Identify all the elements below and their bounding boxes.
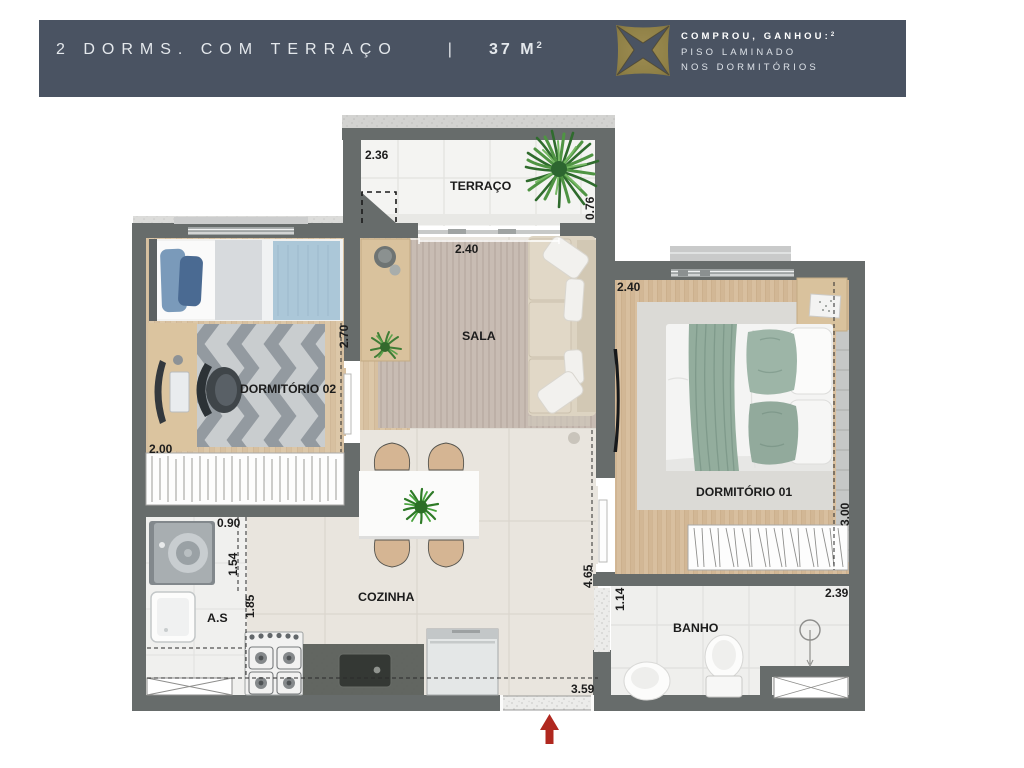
svg-text:2.39: 2.39 [825, 586, 849, 600]
svg-text:0.76: 0.76 [583, 196, 597, 220]
svg-text:1.85: 1.85 [243, 594, 257, 618]
svg-text:DORMITÓRIO 02: DORMITÓRIO 02 [240, 381, 336, 396]
svg-text:2.40: 2.40 [617, 280, 641, 294]
svg-text:BANHO: BANHO [673, 621, 719, 635]
svg-text:SALA: SALA [462, 329, 496, 343]
svg-text:TERRAÇO: TERRAÇO [450, 179, 512, 193]
svg-text:DORMITÓRIO 01: DORMITÓRIO 01 [696, 484, 792, 499]
svg-text:2.36: 2.36 [365, 148, 389, 162]
svg-text:2.40: 2.40 [455, 242, 479, 256]
svg-text:0.90: 0.90 [217, 516, 241, 530]
svg-text:3.59: 3.59 [571, 682, 595, 696]
svg-text:3.00: 3.00 [838, 502, 852, 526]
svg-text:2.70: 2.70 [337, 324, 351, 348]
svg-text:1.54: 1.54 [226, 552, 240, 576]
svg-text:4.65: 4.65 [581, 564, 595, 588]
svg-text:1.14: 1.14 [613, 587, 627, 611]
svg-text:2.00: 2.00 [149, 442, 173, 456]
svg-text:COZINHA: COZINHA [358, 590, 414, 604]
svg-text:A.S: A.S [207, 611, 228, 625]
